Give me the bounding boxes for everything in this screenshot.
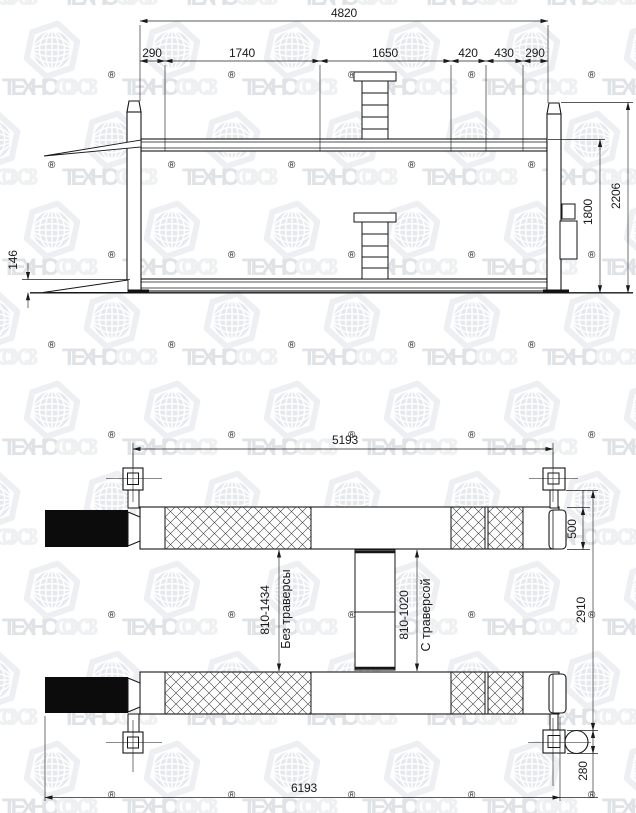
- dim-label: 280: [576, 761, 590, 781]
- traverse-jack: [355, 550, 395, 670]
- power-unit: [565, 731, 588, 754]
- drive-on-ramp: [45, 510, 128, 547]
- dim-label: 500: [565, 519, 579, 539]
- wheel-stop: [549, 674, 566, 713]
- dim-label: 2206: [609, 183, 623, 209]
- tread-plate: [488, 672, 523, 714]
- dim-label: 430: [494, 46, 514, 60]
- dim-label: 290: [142, 46, 162, 60]
- dim-label: 810-1020: [397, 590, 411, 640]
- dim-label: 2910: [574, 597, 588, 623]
- dim-label: С траверсой: [419, 579, 433, 652]
- dim-label: 4820: [331, 6, 357, 20]
- tread-plate: [488, 507, 523, 549]
- tread-plate: [451, 507, 485, 549]
- dim-label: 6193: [291, 781, 317, 795]
- plan-runway-bottom: [45, 672, 566, 714]
- dim-label: 1740: [229, 46, 255, 60]
- dim-label: 5193: [332, 433, 358, 447]
- wheel-stop: [549, 510, 566, 549]
- dim-label: 1650: [372, 46, 398, 60]
- drive-on-ramp: [45, 677, 128, 713]
- tread-plate: [451, 672, 485, 714]
- dim-label: 290: [525, 46, 545, 60]
- drawing-page: ТЕХНОСОЮЗ ТЕХНОСОЮЗ ТЕХНОСОЮЗ ® ® ТЕХНОС…: [0, 0, 636, 813]
- plan-runway-top: [45, 507, 566, 549]
- tread-plate: [165, 507, 311, 549]
- lower-runway: [141, 279, 547, 291]
- technical-drawing: ТЕХНОСОЮЗ ТЕХНОСОЮЗ ТЕХНОСОЮЗ ® ® ТЕХНОС…: [0, 0, 636, 813]
- tread-plate: [165, 672, 311, 714]
- control-box: [560, 204, 577, 259]
- dim-label: 810-1434: [258, 585, 272, 635]
- dim-label: 146: [6, 250, 20, 270]
- dim-label: 1800: [581, 199, 595, 225]
- dim-label: 420: [458, 46, 478, 60]
- dim-label: Без траверсы: [279, 569, 293, 648]
